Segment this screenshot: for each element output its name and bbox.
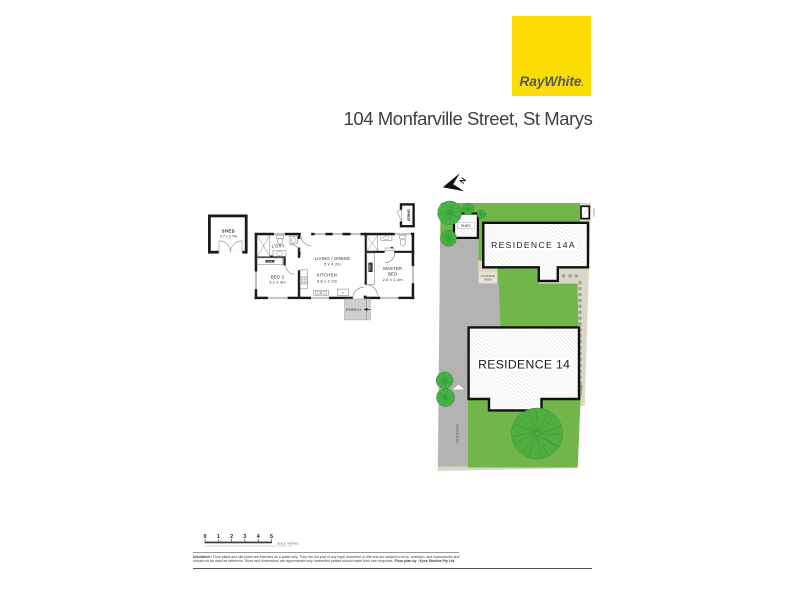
svg-text:2.5 x 2.4m: 2.5 x 2.4m — [383, 278, 403, 282]
svg-text:MASTER: MASTER — [383, 266, 402, 271]
svg-text:BED: BED — [388, 272, 397, 277]
svg-text:3.8 x 2.2m: 3.8 x 2.2m — [317, 280, 337, 284]
svg-text:PORCH: PORCH — [346, 307, 361, 312]
svg-text:SCALE : METRES: SCALE : METRES — [277, 541, 299, 545]
svg-text:RESIDENCE 14: RESIDENCE 14 — [478, 358, 570, 372]
svg-text:BED 2: BED 2 — [271, 274, 285, 279]
svg-text:SHED: SHED — [461, 224, 472, 228]
svg-text:AREA: AREA — [484, 278, 492, 282]
svg-text:LIVING / DINING: LIVING / DINING — [315, 256, 351, 261]
svg-text:3.1 x 3m: 3.1 x 3m — [269, 280, 286, 284]
svg-text:L'DRY: L'DRY — [272, 243, 285, 248]
svg-text:2.7 x 2.7m: 2.7 x 2.7m — [220, 235, 237, 239]
svg-text:N: N — [458, 176, 468, 186]
svg-text:ROBE: ROBE — [370, 264, 372, 270]
svg-text:5 x 4.2m: 5 x 4.2m — [324, 263, 341, 267]
svg-text:DRIVEWAY: DRIVEWAY — [455, 423, 459, 443]
svg-text:F: F — [342, 291, 344, 295]
svg-text:SHED: SHED — [592, 208, 596, 216]
svg-text:SHED: SHED — [222, 228, 235, 233]
svg-text:KITCHEN: KITCHEN — [317, 272, 337, 277]
svg-text:ROBE: ROBE — [267, 261, 273, 263]
svg-text:SHED: SHED — [407, 209, 412, 221]
svg-text:RESIDENCE 14A: RESIDENCE 14A — [491, 240, 576, 250]
